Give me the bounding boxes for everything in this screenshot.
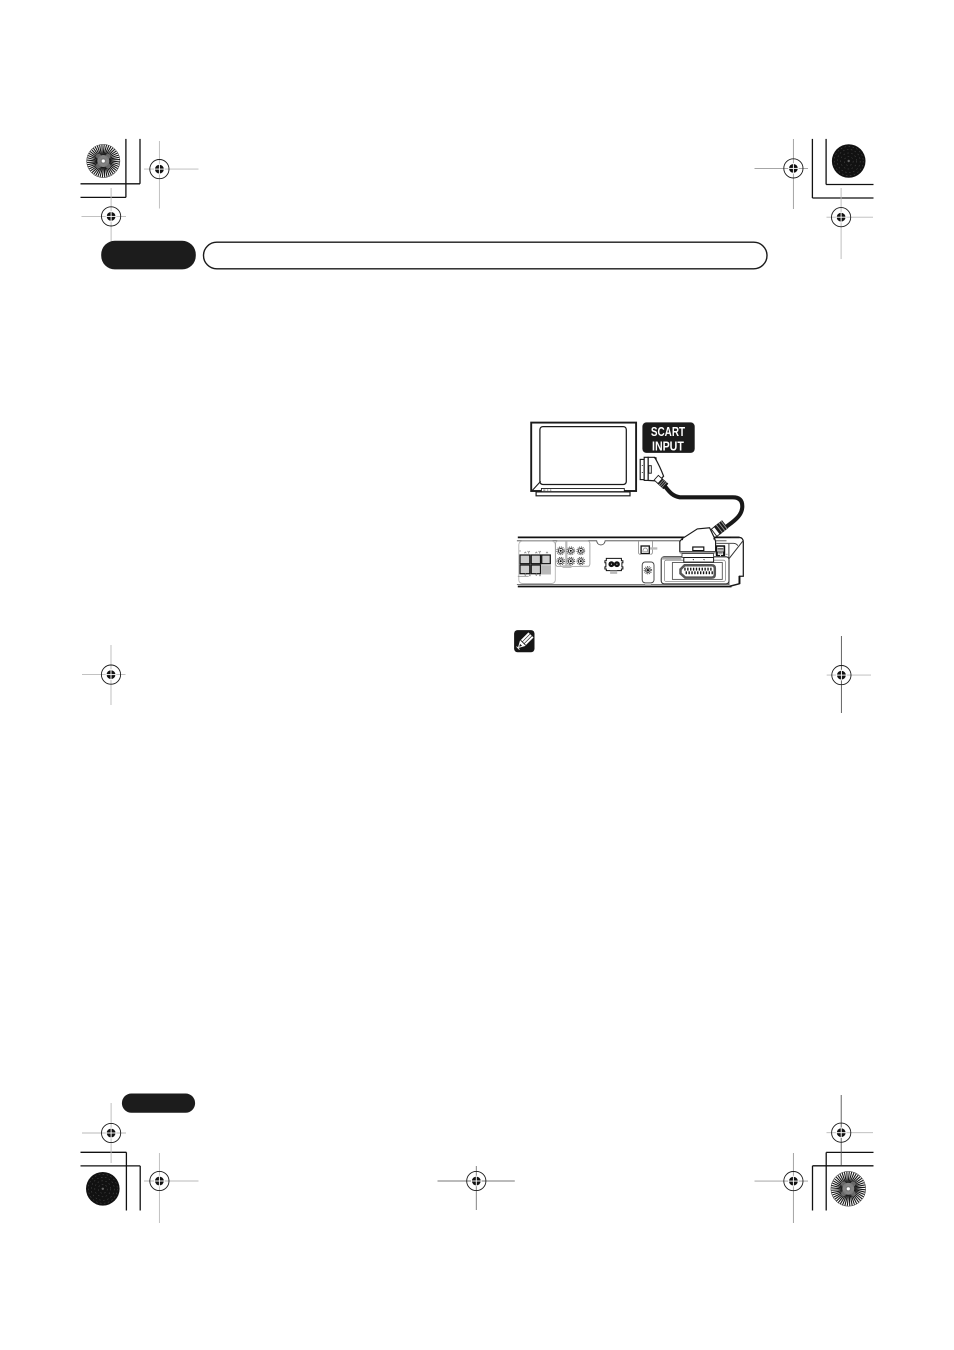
svg-text:SCART: SCART: [651, 425, 685, 439]
svg-text:INPUT: INPUT: [652, 439, 684, 453]
